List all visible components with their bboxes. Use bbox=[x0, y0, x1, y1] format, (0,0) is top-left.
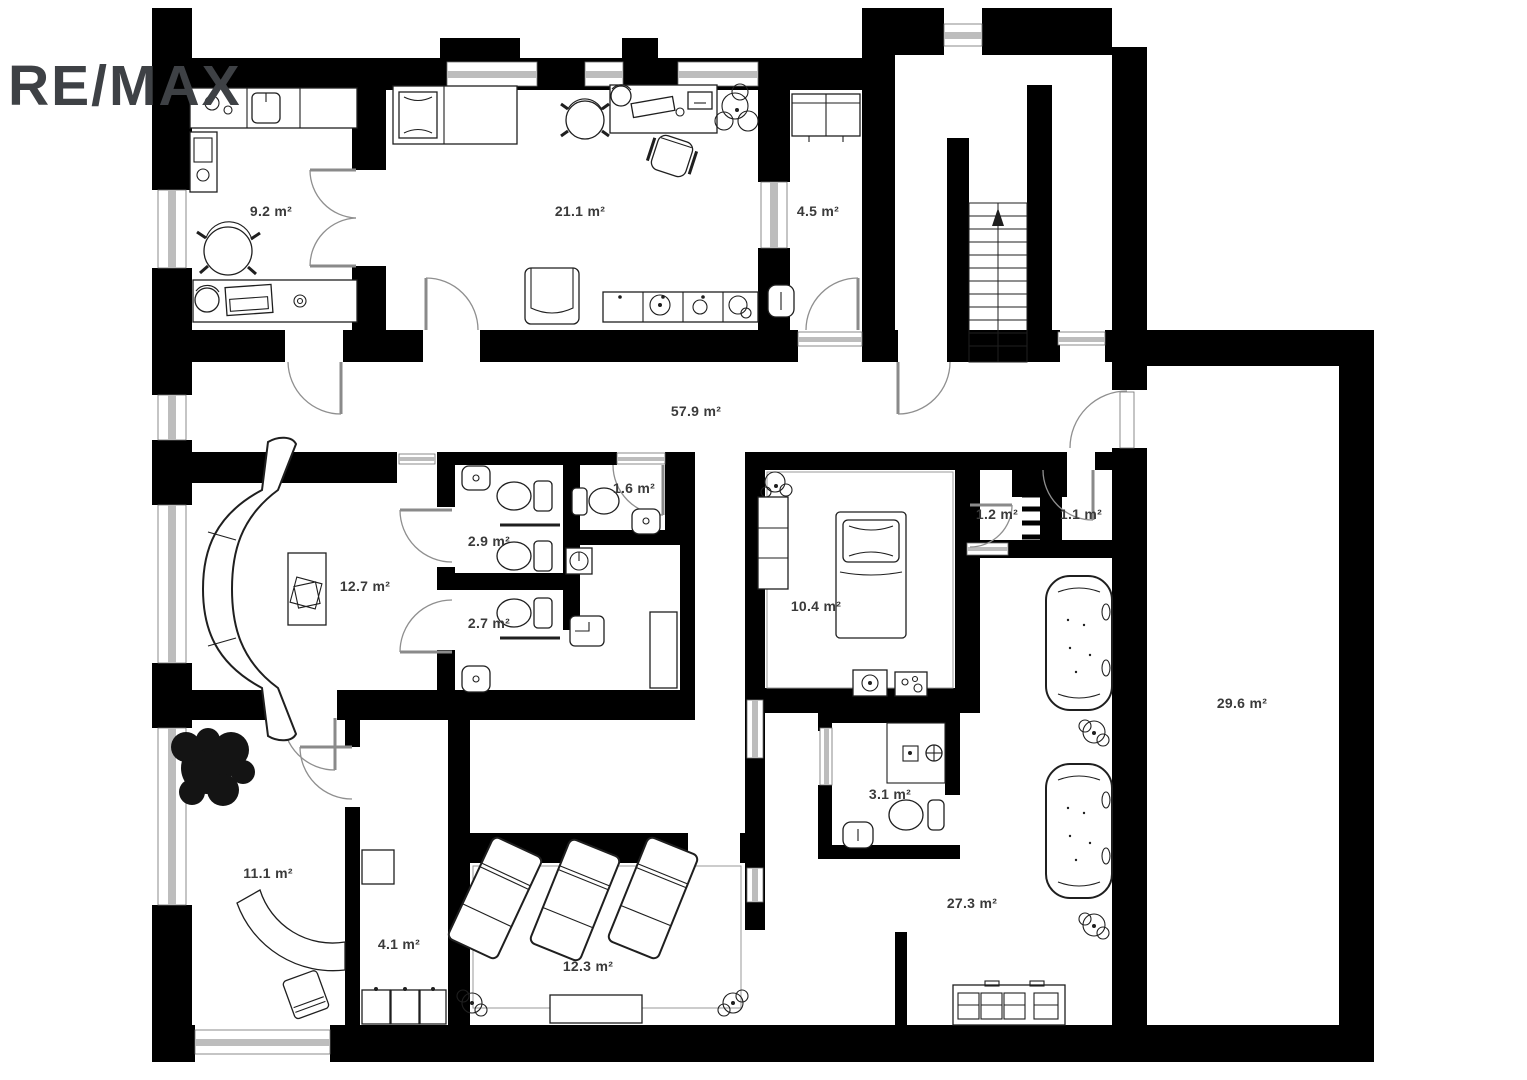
spa-bed bbox=[1046, 764, 1112, 898]
room-label-12-3: 12.3 m² bbox=[563, 958, 613, 974]
window bbox=[447, 62, 537, 86]
room-label-10-4: 10.4 m² bbox=[791, 598, 841, 614]
room-label-11-1: 11.1 m² bbox=[243, 865, 293, 881]
side-table bbox=[895, 672, 927, 696]
window bbox=[820, 728, 832, 785]
door bbox=[1070, 391, 1134, 448]
tall-cabinet bbox=[190, 132, 217, 192]
armchair bbox=[525, 268, 579, 324]
window bbox=[747, 700, 763, 758]
window bbox=[1058, 332, 1105, 345]
wardrobe bbox=[758, 497, 788, 589]
floorplan-drawing: 9.2 m² 21.1 m² 4.5 m² 57.9 m² 2.9 m² 1.6… bbox=[0, 0, 1527, 1080]
door bbox=[806, 278, 858, 330]
hand-basin bbox=[462, 466, 490, 490]
bathroom-cabinet bbox=[650, 612, 677, 688]
floorplan-page: RE/MAX bbox=[0, 0, 1527, 1080]
lockers bbox=[362, 987, 446, 1024]
window bbox=[798, 332, 862, 346]
room-label-1-6: 1.6 m² bbox=[613, 480, 655, 496]
plant bbox=[1079, 720, 1109, 746]
room-label-4-1: 4.1 m² bbox=[378, 936, 420, 952]
small-wardrobe bbox=[362, 850, 394, 884]
plant bbox=[1079, 913, 1109, 939]
wash-basin bbox=[570, 616, 604, 646]
plant bbox=[718, 990, 748, 1016]
seating-bench bbox=[953, 981, 1065, 1025]
desk-with-laptop bbox=[193, 280, 357, 322]
tree-plant bbox=[171, 728, 255, 806]
toilet bbox=[889, 800, 944, 830]
coffee-table bbox=[288, 553, 326, 625]
window bbox=[678, 62, 758, 86]
window bbox=[747, 868, 763, 902]
room-label-27-3: 27.3 m² bbox=[947, 895, 997, 911]
room-label-1-1: 1.1 m² bbox=[1060, 506, 1102, 522]
room-label-2-9: 2.9 m² bbox=[468, 533, 510, 549]
office-chair bbox=[646, 132, 699, 180]
remax-logo: RE/MAX bbox=[8, 58, 242, 115]
room-label-21-1: 21.1 m² bbox=[555, 203, 605, 219]
office-desk bbox=[610, 85, 717, 133]
reception-desk bbox=[237, 890, 345, 971]
bed-top bbox=[393, 86, 517, 144]
hand-basin bbox=[632, 509, 660, 534]
side-table bbox=[853, 670, 887, 696]
room-label-9-2: 9.2 m² bbox=[250, 203, 292, 219]
shower-stall bbox=[887, 723, 945, 783]
window bbox=[158, 505, 186, 663]
plant bbox=[761, 472, 792, 497]
plant bbox=[715, 84, 758, 131]
door bbox=[288, 362, 341, 414]
hand-basin bbox=[462, 666, 490, 692]
bench bbox=[550, 995, 642, 1023]
desk-chair bbox=[282, 970, 330, 1020]
room-label-1-2: 1.2 m² bbox=[976, 506, 1018, 522]
window bbox=[617, 453, 665, 464]
stool bbox=[561, 99, 609, 139]
waste-bin bbox=[843, 822, 873, 848]
wardrobe bbox=[792, 94, 860, 142]
stairs-up-arrow bbox=[992, 208, 1004, 252]
window bbox=[944, 24, 982, 46]
door bbox=[300, 747, 352, 799]
double-door bbox=[310, 170, 356, 266]
door bbox=[898, 362, 950, 414]
sideboard bbox=[603, 292, 758, 322]
door bbox=[426, 278, 478, 330]
room-label-2-7: 2.7 m² bbox=[468, 615, 510, 631]
single-bed bbox=[836, 512, 906, 638]
door bbox=[400, 510, 452, 562]
room-label-4-5: 4.5 m² bbox=[797, 203, 839, 219]
toilet bbox=[497, 481, 552, 511]
spa-bed bbox=[1046, 576, 1112, 710]
window bbox=[158, 190, 186, 268]
wash-basin bbox=[566, 548, 592, 574]
radiator bbox=[768, 285, 794, 317]
window bbox=[585, 62, 623, 86]
window bbox=[761, 182, 787, 248]
window bbox=[195, 1030, 330, 1054]
room-label-29-6: 29.6 m² bbox=[1217, 695, 1267, 711]
window bbox=[399, 454, 435, 464]
room-label-3-1: 3.1 m² bbox=[869, 786, 911, 802]
window bbox=[967, 543, 1008, 555]
window bbox=[158, 395, 186, 440]
room-label-57-9: 57.9 m² bbox=[671, 403, 721, 419]
round-table-chairs bbox=[197, 222, 260, 275]
door bbox=[400, 600, 452, 652]
room-label-12-7: 12.7 m² bbox=[340, 578, 390, 594]
